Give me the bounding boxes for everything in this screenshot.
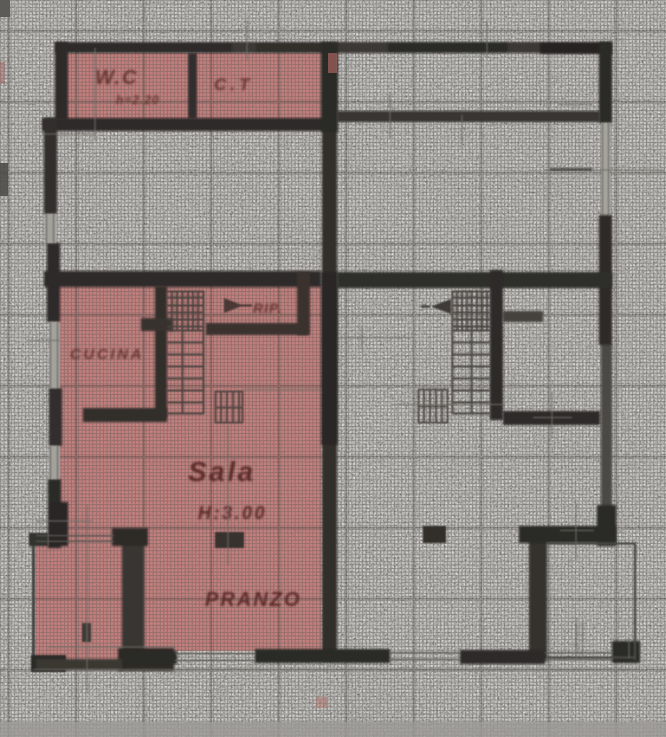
svg-text:H:3.00: H:3.00: [198, 503, 267, 523]
svg-text:Sala: Sala: [188, 456, 256, 487]
svg-text:W.C: W.C: [95, 67, 138, 89]
svg-text:CUCINA: CUCINA: [70, 346, 144, 363]
svg-text:C.T: C.T: [214, 75, 253, 94]
svg-text:RIP.: RIP.: [253, 300, 282, 316]
svg-text:h=2.20: h=2.20: [116, 93, 160, 107]
svg-text:PRANZO: PRANZO: [205, 589, 301, 611]
